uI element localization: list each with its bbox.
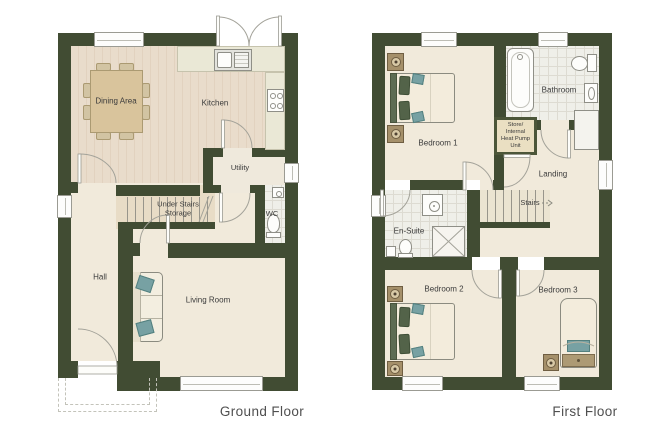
wall xyxy=(285,33,298,391)
room-label-dining: Dining Area xyxy=(95,97,136,106)
wall xyxy=(410,180,465,190)
bed-fold-line xyxy=(430,304,431,359)
washbasin xyxy=(386,246,396,257)
room-label-landing: Landing xyxy=(539,170,567,179)
bedside-table xyxy=(387,125,404,143)
bedside-table xyxy=(387,361,403,376)
kitchen-sink xyxy=(214,49,252,71)
cupboard xyxy=(574,110,599,150)
wall xyxy=(255,185,265,245)
vanity-bowl xyxy=(429,201,440,212)
understairs-line2: Storage xyxy=(157,209,199,218)
room-label-bedroom1: Bedroom 1 xyxy=(418,139,457,148)
toilet-bowl xyxy=(571,56,588,71)
bedside-table xyxy=(387,53,404,71)
bed-throw xyxy=(411,303,425,315)
room-label-bedroom2: Bedroom 2 xyxy=(424,285,463,294)
front-door-opening xyxy=(78,361,117,378)
french-door-opening xyxy=(218,33,280,46)
pillow xyxy=(398,334,410,355)
dining-chair xyxy=(142,105,150,120)
lamp-icon xyxy=(390,289,400,299)
lamp-dot xyxy=(394,367,397,370)
room-label-utility: Utility xyxy=(231,164,249,173)
store-line1: Store/ xyxy=(508,122,523,129)
burner xyxy=(277,93,283,99)
dining-chair xyxy=(119,132,134,140)
lamp-icon xyxy=(391,129,401,139)
pillow xyxy=(399,76,411,96)
hob xyxy=(267,89,284,112)
wall xyxy=(502,270,516,377)
lamp-dot xyxy=(394,293,397,296)
room-label-kitchen: Kitchen xyxy=(202,99,229,108)
window xyxy=(180,376,263,391)
room-label-stairs: Stairs xyxy=(520,199,539,208)
window xyxy=(402,376,443,391)
bed-cushion xyxy=(567,340,590,352)
window xyxy=(284,163,299,183)
sink-bowl xyxy=(217,52,232,68)
toilet-tank xyxy=(398,253,413,258)
washbasin xyxy=(584,83,598,103)
burner xyxy=(270,93,276,99)
pillow xyxy=(398,307,410,328)
store-line2: Internal xyxy=(506,129,525,136)
lamp-dot xyxy=(550,361,553,364)
window xyxy=(94,32,144,47)
floor-plan-canvas: Dining Area Kitchen Utility Under Stairs… xyxy=(0,0,668,445)
lamp-icon xyxy=(391,57,401,67)
first-floor-plan: Store/ Internal Heat Pump Unit xyxy=(372,13,612,413)
bath-inner xyxy=(511,52,530,108)
room-label-ensuite: En-Suite xyxy=(394,227,425,236)
wall xyxy=(494,46,506,117)
pillow xyxy=(399,101,411,121)
room-label-wc: WC xyxy=(266,210,279,219)
wall xyxy=(500,257,518,270)
wall xyxy=(372,180,382,190)
bath-tap xyxy=(517,54,523,60)
wall xyxy=(537,120,541,130)
wall xyxy=(372,33,612,46)
store-line3: Heat Pump xyxy=(501,136,530,143)
porch-outline-inner xyxy=(65,378,150,405)
first-floor-title: First Floor xyxy=(510,404,660,419)
bed-drawer xyxy=(562,354,595,367)
bed-headboard xyxy=(390,73,397,123)
vanity-sink xyxy=(422,194,443,216)
window xyxy=(421,32,457,47)
bed-fold-line xyxy=(430,74,431,122)
shower xyxy=(432,226,465,257)
wall xyxy=(467,222,550,228)
room-label-hall: Hall xyxy=(93,273,107,282)
basin-dot xyxy=(276,191,282,197)
drawer-knob xyxy=(577,359,580,362)
room-label-living: Living Room xyxy=(186,296,230,305)
sofa-seat-line xyxy=(140,295,162,296)
bed-throw xyxy=(411,73,425,85)
bed-headboard xyxy=(390,303,397,360)
window xyxy=(538,32,568,47)
wall xyxy=(544,257,599,270)
wall xyxy=(599,33,612,390)
wall xyxy=(116,185,200,196)
window xyxy=(524,376,560,391)
wall xyxy=(168,243,285,258)
store-line4: Unit xyxy=(510,143,520,150)
wall xyxy=(133,243,140,256)
room-label-bedroom3: Bedroom 3 xyxy=(538,286,577,295)
dining-chair xyxy=(96,132,111,140)
bedside-table xyxy=(387,286,403,302)
washbasin xyxy=(272,187,284,198)
burner xyxy=(277,103,283,109)
store-heat-pump-unit: Store/ Internal Heat Pump Unit xyxy=(494,117,537,155)
basin-bowl xyxy=(588,87,595,100)
burner xyxy=(270,103,276,109)
dining-chair xyxy=(142,83,150,98)
wall xyxy=(203,185,221,193)
ground-floor-title: Ground Floor xyxy=(187,404,337,419)
lamp-dot xyxy=(394,61,397,64)
wall xyxy=(120,222,215,229)
wall xyxy=(372,257,472,270)
window xyxy=(371,195,386,217)
vanity-dot xyxy=(433,205,435,207)
window xyxy=(57,195,72,218)
toilet-tank xyxy=(587,54,597,72)
wall xyxy=(58,182,78,193)
lamp-icon xyxy=(546,358,556,368)
wall xyxy=(493,180,504,190)
lamp-dot xyxy=(394,133,397,136)
ground-floor-plan: Dining Area Kitchen Utility Under Stairs… xyxy=(58,13,298,413)
window xyxy=(598,160,613,190)
wall xyxy=(118,222,133,378)
bath xyxy=(507,48,534,112)
sink-drainer xyxy=(234,52,249,68)
room-label-understairs: Under Stairs Storage xyxy=(157,201,199,218)
lamp-icon xyxy=(390,364,400,374)
room-label-bathroom: Bathroom xyxy=(542,86,577,95)
bedside-table xyxy=(543,354,559,371)
